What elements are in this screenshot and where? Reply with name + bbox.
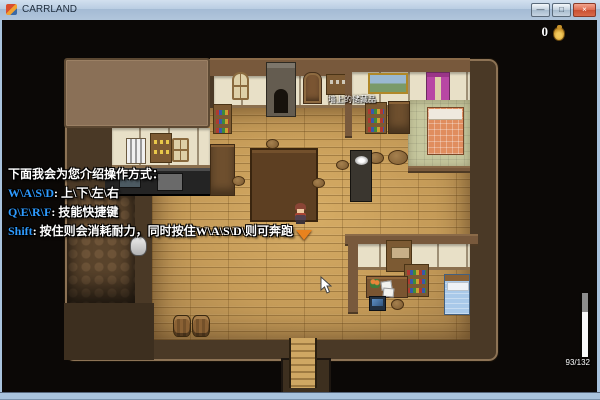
door-icon [303,72,322,104]
maximize-icon: □ [559,5,564,14]
stool [266,139,279,149]
tutorial-line-3: Q\E\R\F: 技能快捷键 [8,203,293,222]
shelf-box [391,247,410,259]
maximize-button[interactable]: □ [552,3,571,17]
kitchen-window-icon [126,138,146,164]
small-window-icon [172,138,189,162]
barrel [192,315,210,337]
roof-area [64,58,210,128]
window-title: CARRLAND [22,4,77,15]
titlebar[interactable]: CARRLAND — □ × [0,0,600,21]
jars [154,150,170,154]
fireplace [266,62,296,117]
computer-monitor [369,296,386,311]
tutorial-line-1: 下面我会为您介绍操作方式： [8,165,293,184]
desk-stool [391,299,404,310]
jars [154,140,170,144]
stool [336,160,349,170]
bed-headboard [445,275,469,281]
exit-stairs [289,338,317,388]
stamina-value: 93/132 [558,358,590,367]
minimize-icon: — [537,5,545,14]
bed [427,107,464,155]
study-left-post [348,234,358,314]
player-character [293,203,308,224]
map-label-wall-storage: 墙上的储藏品 [328,94,376,105]
key-hint: Q\E\R\F [8,205,51,219]
close-button[interactable]: × [573,3,596,17]
washstand [350,150,372,202]
tutorial-line-2: W\A\S\D: 上\下\左\右 [8,184,293,203]
bookshelf [213,104,232,134]
tutorial-text: 下面我会为您介绍操作方式： W\A\S\D: 上\下\左\右 Q\E\R\F: … [8,165,293,241]
stool [312,178,325,188]
painting-icon [368,73,408,94]
tutorial-line-4: Shift: 按住则会消耗耐力，同时按住W\A\S\D\则可奔跑 [8,222,293,241]
lower-left-wall [64,303,154,360]
desk [366,276,408,298]
key-hint: Shift [8,224,33,238]
minimize-button[interactable]: — [531,3,550,17]
mouse-cursor-icon [320,276,332,294]
bed-pillow [447,282,469,291]
destination-arrow-icon [296,230,312,240]
arched-window-icon [232,72,249,100]
app-icon [6,4,17,15]
window-controls: — □ × [531,3,596,17]
stamina-gauge [582,293,588,357]
round-table [388,150,408,165]
gold-pouch-icon [553,27,565,41]
flower-pot-icon [370,279,380,288]
close-icon: × [582,5,587,14]
gold-counter: 0 [532,24,548,40]
single-bed [444,274,470,315]
wardrobe [388,101,410,134]
app-window: CARRLAND — □ × [0,0,600,400]
game-viewport[interactable]: 墙上的储藏品 0 93/132 下面我会为您介绍操作方式： W\A\S\D: 上… [2,20,597,392]
window-border-bottom [0,392,600,400]
jar-shelf [150,133,172,163]
barrel [173,315,191,337]
bedroom-bookshelf [365,102,387,134]
bedroom-edge [408,166,470,173]
key-hint: W\A\S\D [8,186,54,200]
